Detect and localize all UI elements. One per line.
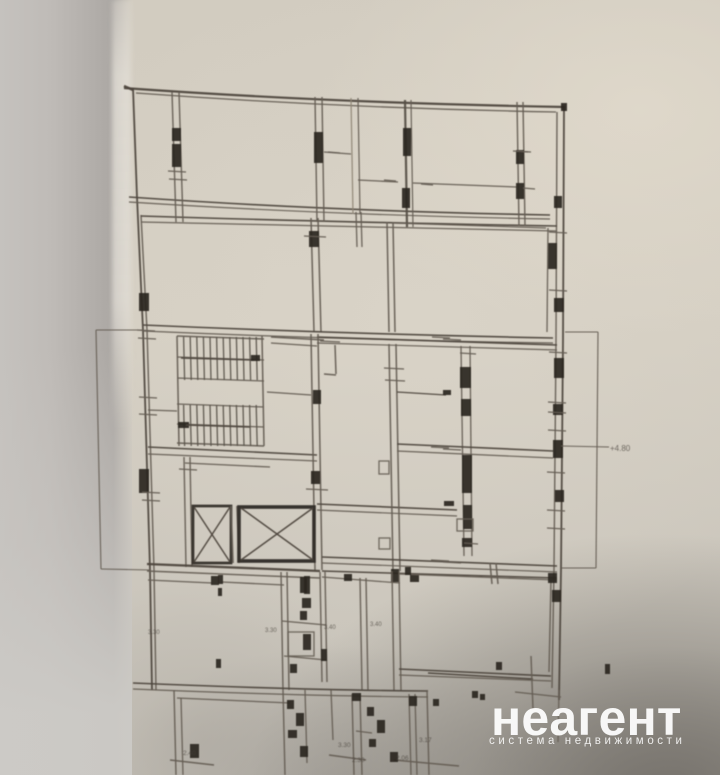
- svg-text:3.30: 3.30: [265, 628, 277, 634]
- svg-text:3.40: 3.40: [324, 625, 336, 631]
- svg-text:3.30: 3.30: [148, 630, 160, 636]
- svg-text:2.40: 2.40: [183, 750, 196, 757]
- svg-text:3.17: 3.17: [419, 737, 432, 744]
- svg-text:2.06: 2.06: [396, 755, 409, 762]
- svg-text:2.30: 2.30: [352, 757, 365, 764]
- svg-text:+4.80: +4.80: [610, 444, 631, 453]
- svg-text:3.30: 3.30: [338, 742, 351, 749]
- svg-text:3.40: 3.40: [370, 622, 382, 628]
